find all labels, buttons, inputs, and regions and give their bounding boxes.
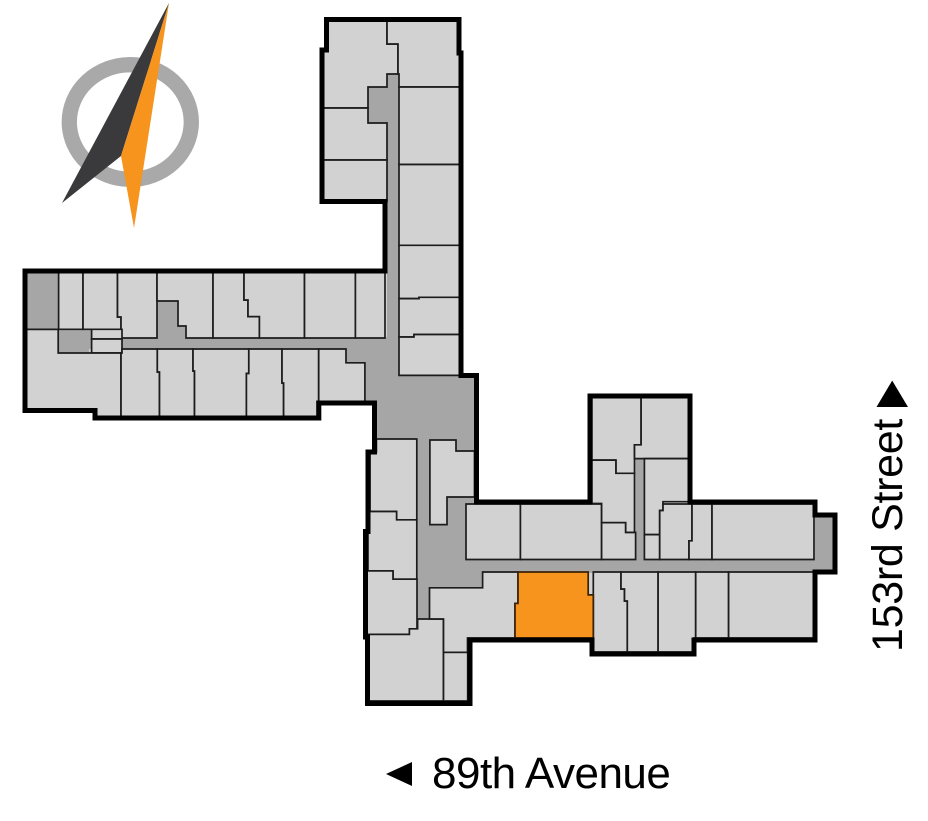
svg-text:153rd Street: 153rd Street — [864, 419, 912, 652]
svg-text:89th Avenue: 89th Avenue — [432, 749, 670, 798]
